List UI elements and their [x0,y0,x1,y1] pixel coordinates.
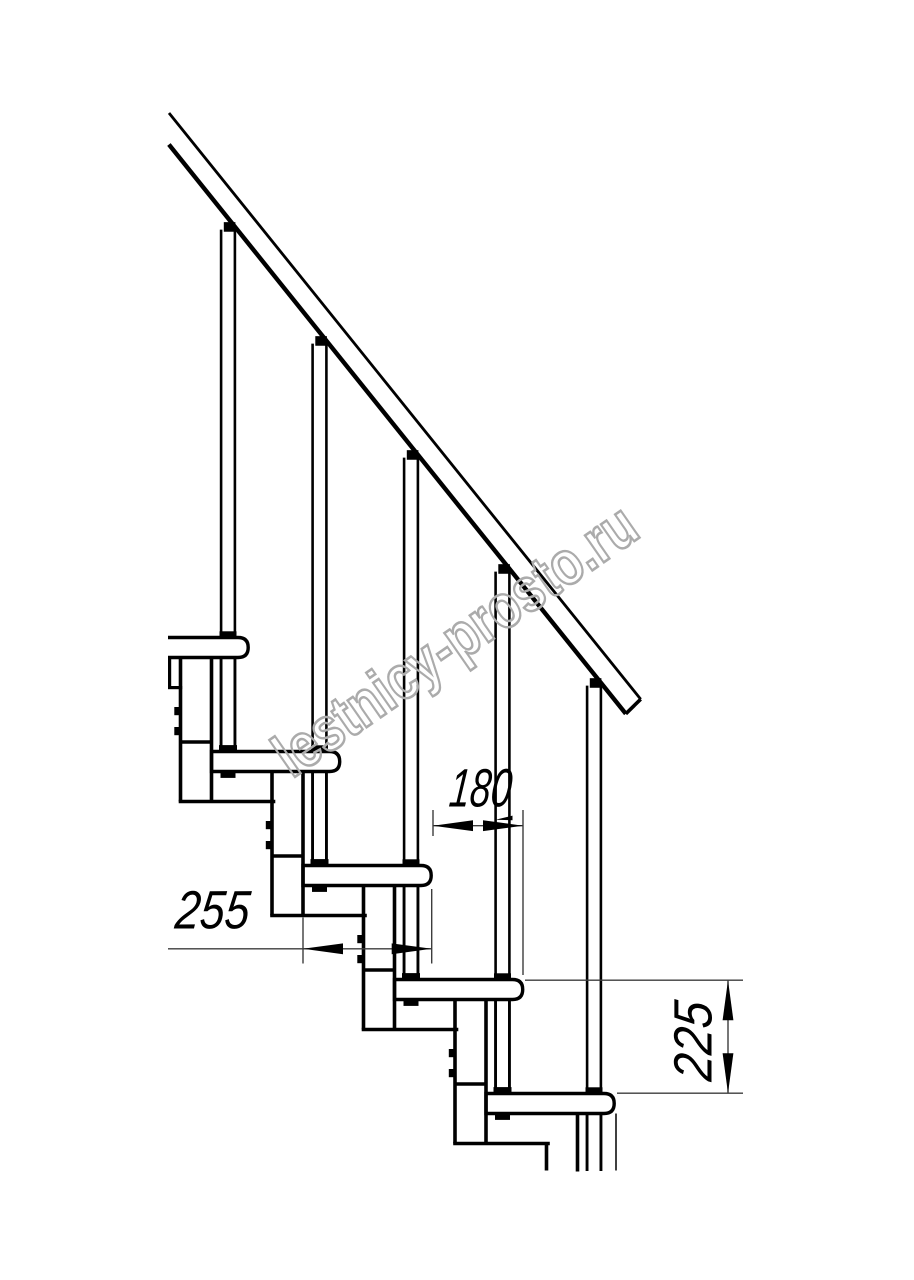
svg-text:255: 255 [172,880,254,940]
svg-text:180: 180 [447,758,515,818]
svg-text:225: 225 [664,997,724,1084]
